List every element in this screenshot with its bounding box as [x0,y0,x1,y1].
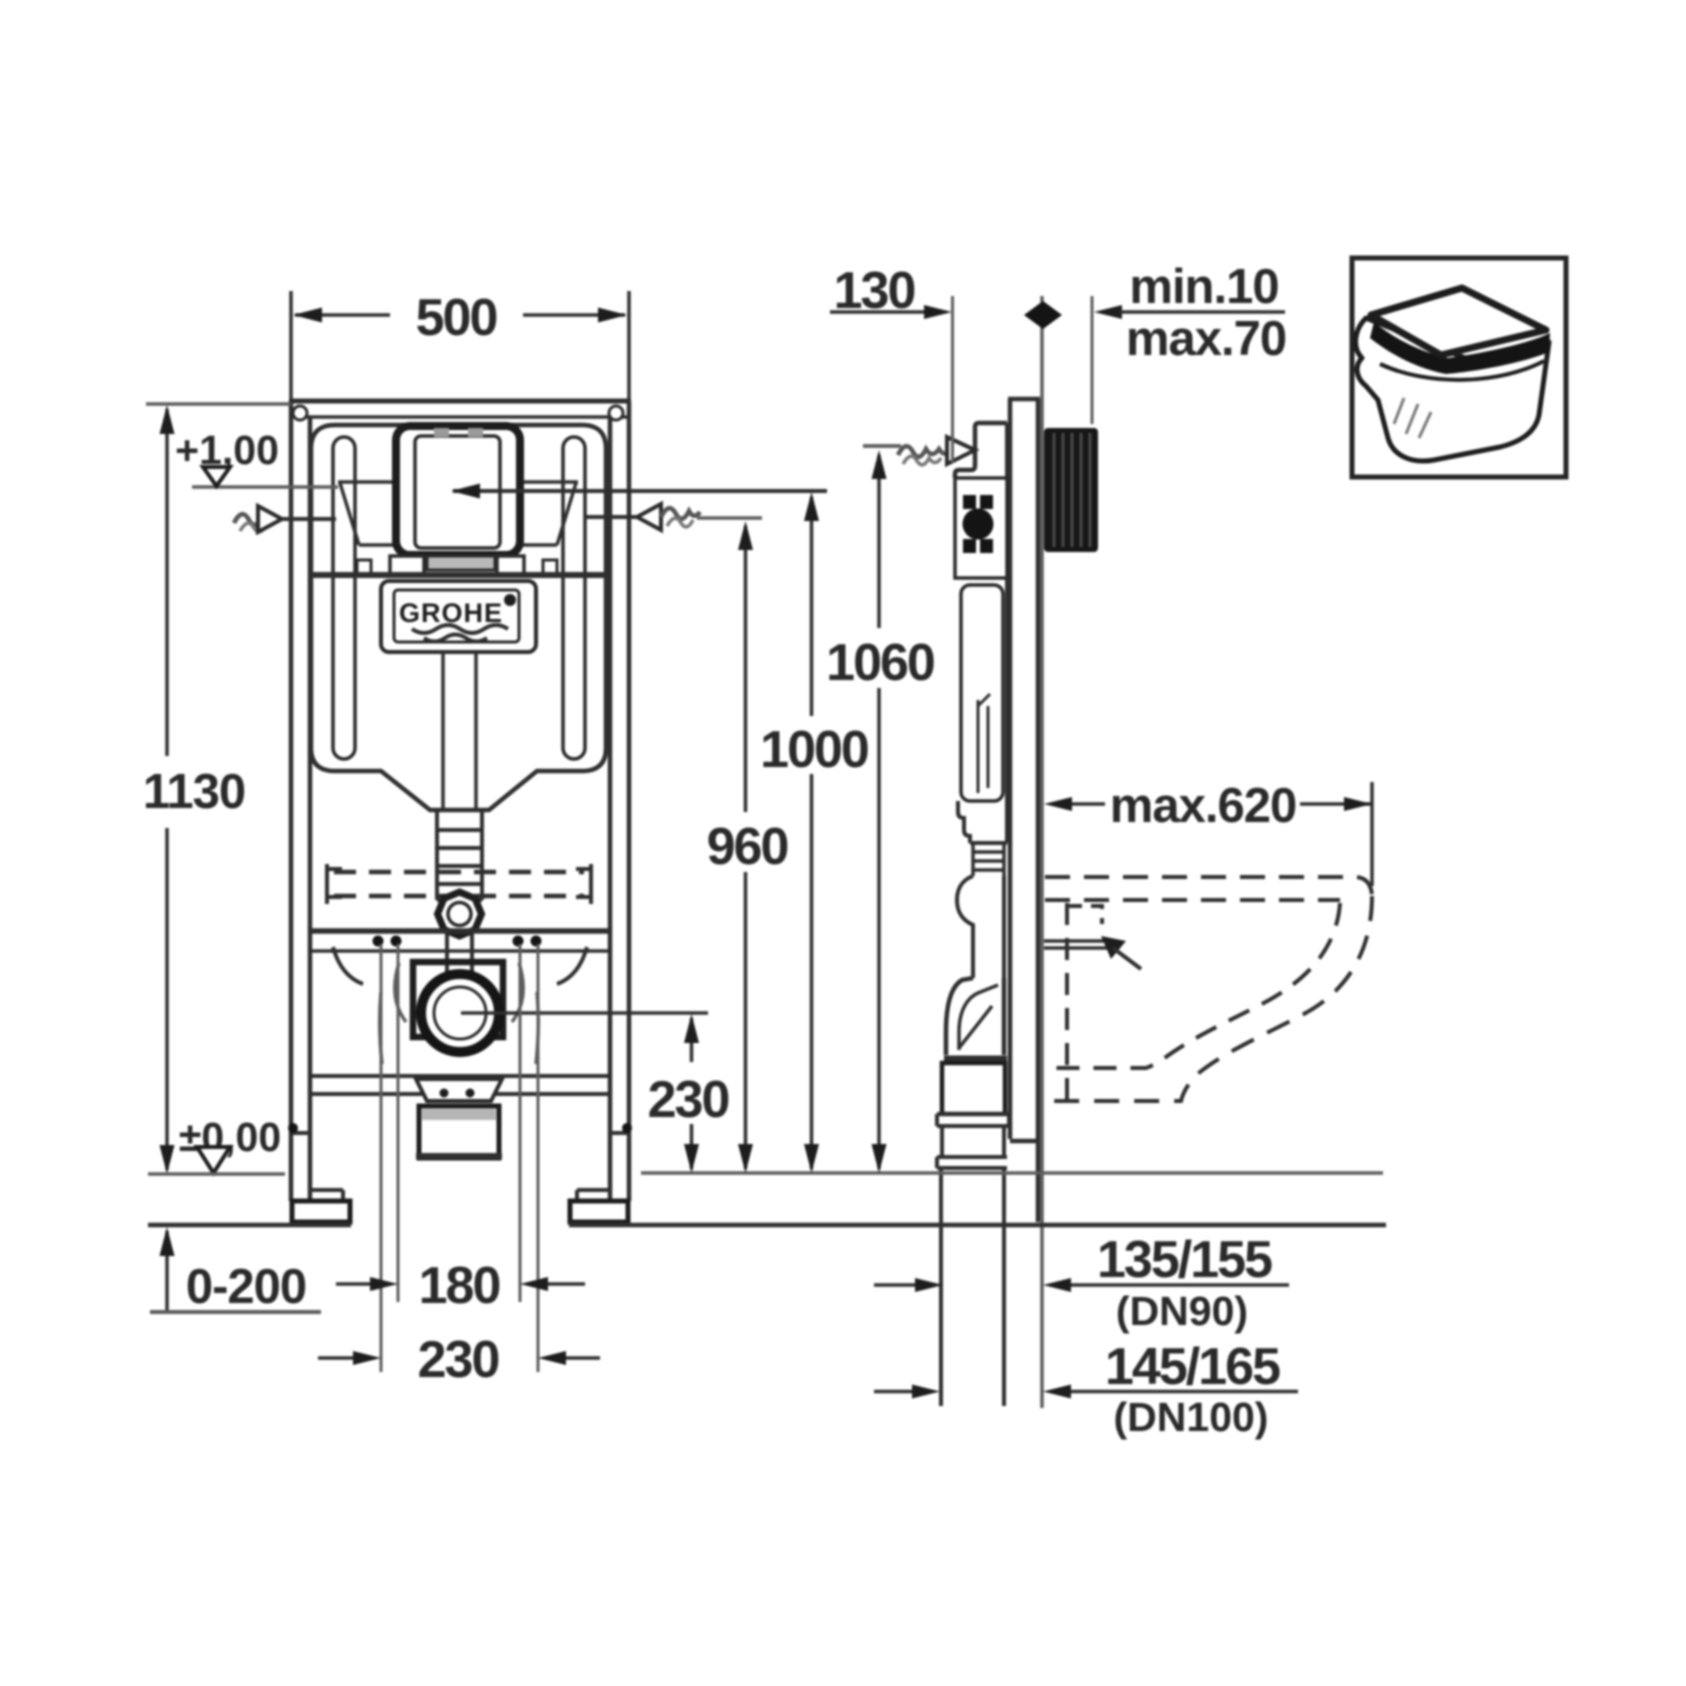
svg-text:180: 180 [419,1257,500,1315]
svg-text:230: 230 [648,1071,729,1129]
svg-text:500: 500 [416,289,497,347]
svg-text:230: 230 [418,1331,499,1389]
svg-text:960: 960 [707,818,788,876]
svg-text:0-200: 0-200 [186,1260,306,1314]
svg-text:(DN90): (DN90) [1116,1288,1248,1334]
svg-text:1000: 1000 [760,721,868,779]
svg-text:max.70: max.70 [1126,312,1286,366]
svg-text:1130: 1130 [143,765,245,819]
svg-text:max.620: max.620 [1110,779,1296,833]
svg-text:±0,00: ±0,00 [179,1114,281,1160]
svg-text:145/165: 145/165 [1105,1338,1280,1396]
svg-text:(DN100): (DN100) [1114,1394,1269,1440]
svg-text:min.10: min.10 [1129,260,1278,314]
svg-text:1060: 1060 [826,634,934,692]
svg-text:135/155: 135/155 [1097,1231,1272,1289]
